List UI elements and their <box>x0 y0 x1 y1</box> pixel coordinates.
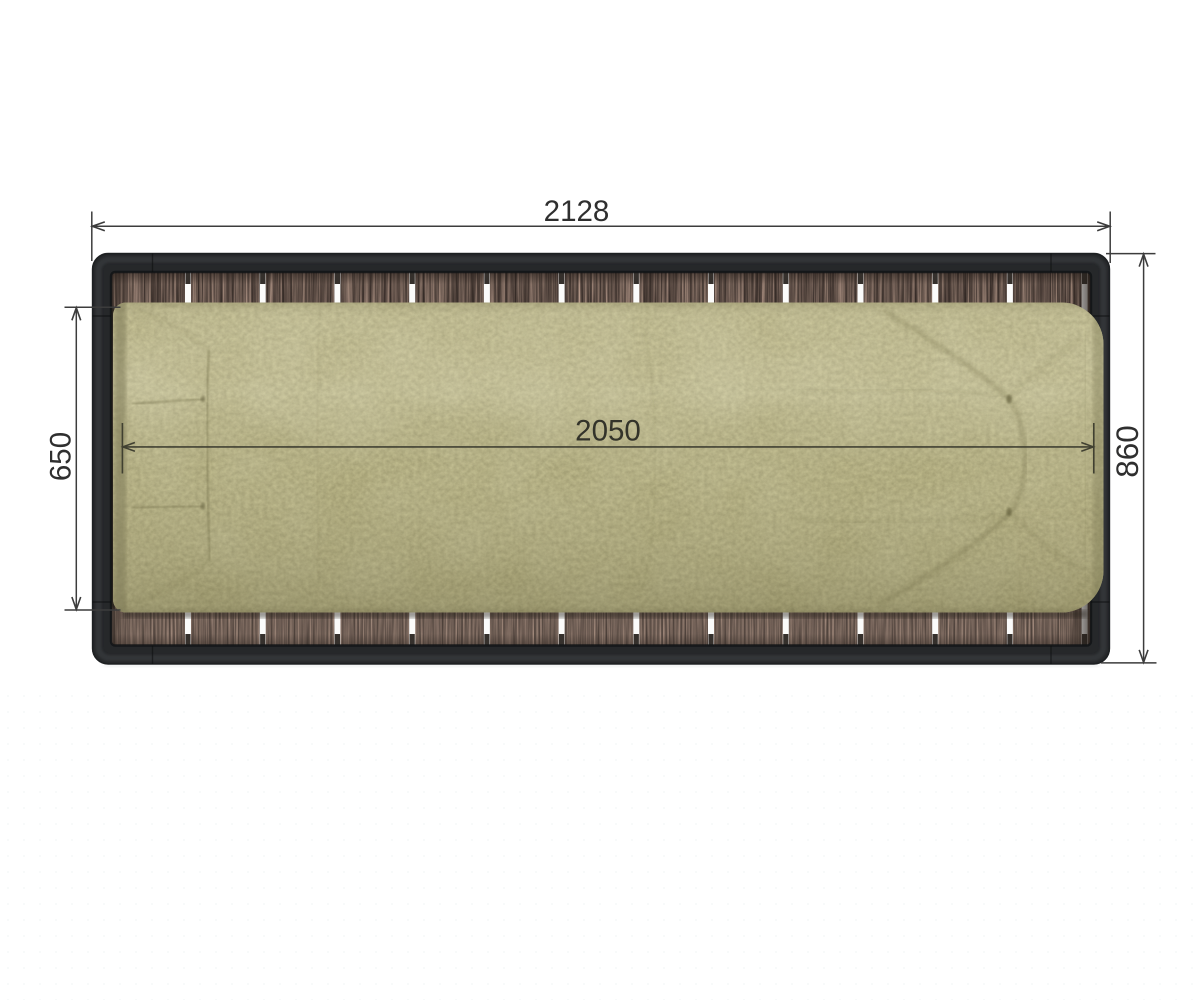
svg-text:2128: 2128 <box>544 195 610 228</box>
svg-text:650: 650 <box>45 432 78 481</box>
svg-text:2050: 2050 <box>575 415 641 448</box>
svg-text:860: 860 <box>1109 425 1145 478</box>
